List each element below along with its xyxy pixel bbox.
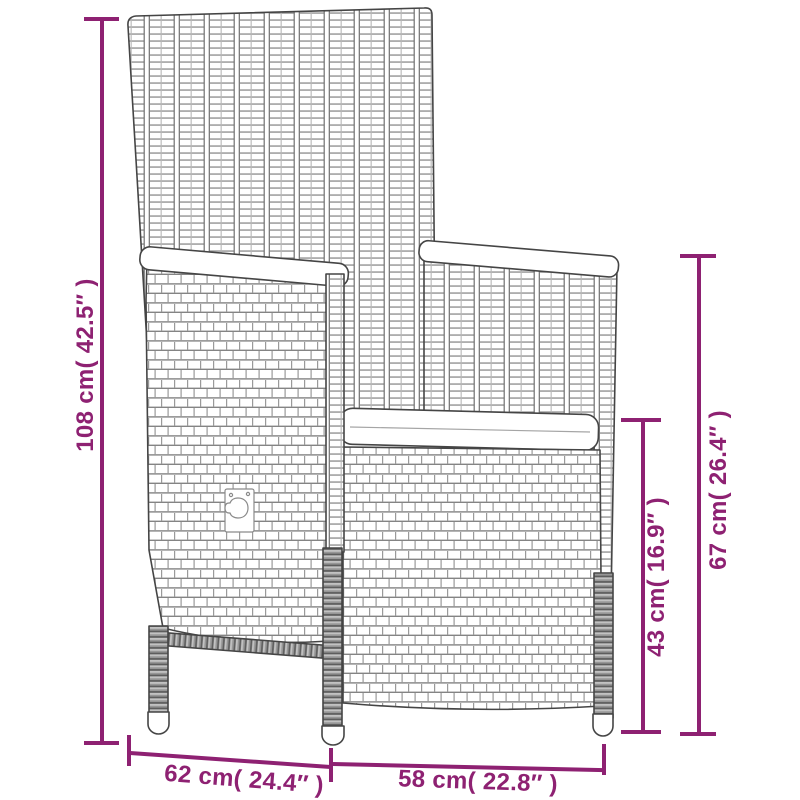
dimension-label-overall-height: 108 cm( 42.5″ ): [72, 278, 100, 451]
brand-emblem-plate: [225, 489, 254, 532]
dimension-endcap: [621, 418, 661, 422]
chair-front-left-foot: [322, 726, 344, 745]
chair-front-left-leg: [323, 548, 342, 728]
dimension-endcap: [680, 254, 716, 258]
dimension-endcap: [84, 17, 119, 21]
dimension-endcap: [680, 732, 716, 736]
chair-seat-front-panel: [343, 447, 602, 709]
chair-front-right-leg: [594, 573, 613, 718]
dimension-label-arm-height: 67 cm( 26.4″ ): [705, 410, 733, 570]
chair-front-left-post: [326, 274, 344, 552]
chair-front-right-foot: [593, 714, 613, 736]
dimension-line-arm-height: [697, 256, 701, 735]
dimension-tick: [127, 735, 131, 766]
dimension-endcap: [621, 730, 661, 734]
dimension-label-seat-height: 43 cm( 16.9″ ): [643, 497, 671, 657]
chair-left-side-panel: [146, 259, 330, 642]
dimension-tick: [602, 744, 606, 775]
emblem-screw-icon: [229, 493, 232, 496]
chair-rear-left-foot: [148, 712, 169, 734]
emblem-screw-icon: [246, 492, 249, 495]
dimension-endcap: [84, 741, 119, 745]
chair-illustration: [0, 0, 800, 800]
chair-rear-left-leg: [149, 626, 168, 716]
product-dimension-diagram: 108 cm( 42.5″ ) 67 cm( 26.4″ ) 43 cm( 16…: [0, 0, 800, 800]
dimension-label-width: 58 cm( 22.8″ ): [398, 765, 559, 799]
dimension-line-overall-height: [100, 19, 104, 744]
